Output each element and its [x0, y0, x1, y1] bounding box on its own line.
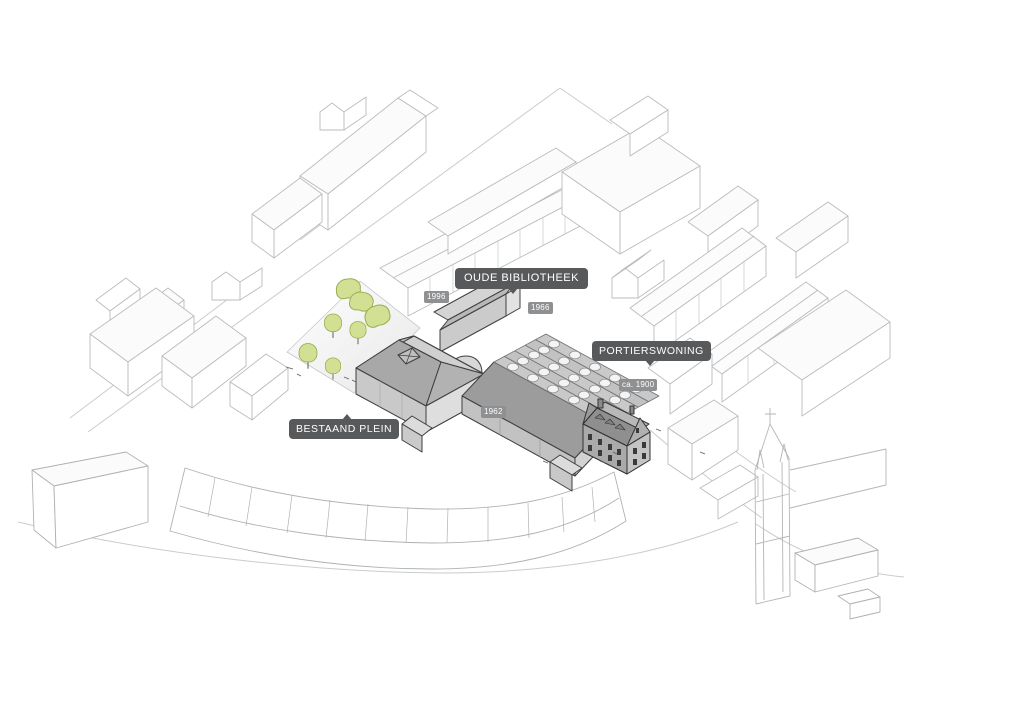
chimney [630, 406, 634, 414]
context-top-right-blocks [562, 96, 700, 254]
label-bestaand-plein-text: BESTAAND PLEIN [296, 423, 392, 435]
library-complex [356, 276, 659, 491]
label-portierswoning-text: PORTIERSWONING [599, 345, 704, 357]
building-portierswoning [583, 399, 650, 474]
site-diagram-canvas: OUDE BIBLIOTHEEK PORTIERSWONING BESTAAND… [0, 0, 1024, 724]
year-tag-text: ca. 1900 [622, 380, 654, 389]
context-buildings [32, 90, 890, 619]
site-axonometric-drawing [0, 0, 1024, 724]
year-tag-text: 1966 [531, 303, 550, 312]
cross-icon [765, 408, 776, 424]
year-tag-hall-roof: 1962 [481, 406, 506, 418]
label-pointer-icon [508, 288, 518, 294]
label-pointer-icon [342, 414, 352, 420]
year-tag-portierswoning: ca. 1900 [619, 379, 657, 391]
year-tag-text: 1996 [427, 292, 446, 301]
label-oude-bibliotheek-text: OUDE BIBLIOTHEEK [464, 272, 579, 284]
year-tag-text: 1962 [484, 407, 503, 416]
label-bestaand-plein: BESTAAND PLEIN [289, 419, 399, 439]
label-portierswoning: PORTIERSWONING [592, 341, 711, 361]
year-tag-middle-wing: 1966 [528, 302, 553, 314]
year-tag-1996-wing: 1996 [424, 291, 449, 303]
label-oude-bibliotheek: OUDE BIBLIOTHEEK [455, 268, 588, 289]
chimney [598, 399, 603, 408]
label-pointer-icon [645, 360, 655, 366]
